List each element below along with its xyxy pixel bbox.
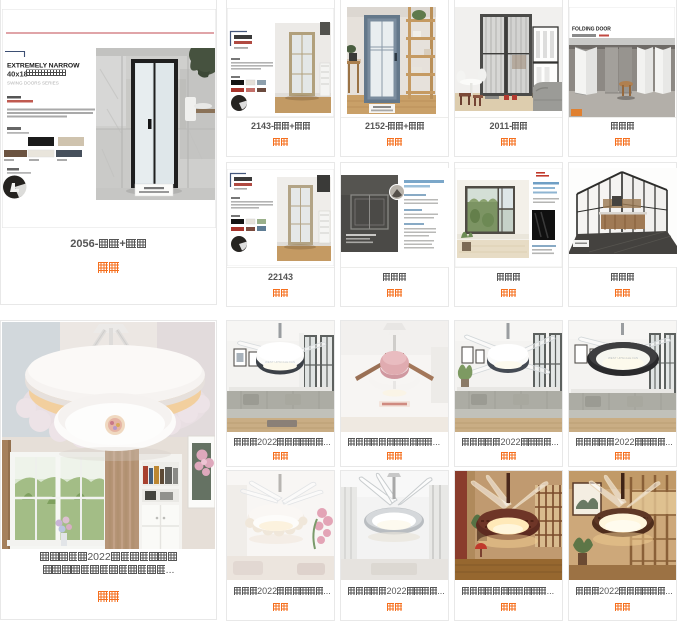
svg-text:SWING DOORS SERIES: SWING DOORS SERIES: [7, 81, 59, 86]
svg-text:FOLDING DOOR: FOLDING DOOR: [572, 27, 611, 33]
svg-text:40x18: 40x18: [7, 70, 28, 79]
svg-text:EXTREMELY NARROW: EXTREMELY NARROW: [7, 63, 80, 70]
svg-text:WEST UPSCALE FAN: WEST UPSCALE FAN: [265, 360, 295, 364]
svg-text:WEST UPSCALE FAN: WEST UPSCALE FAN: [608, 356, 638, 360]
